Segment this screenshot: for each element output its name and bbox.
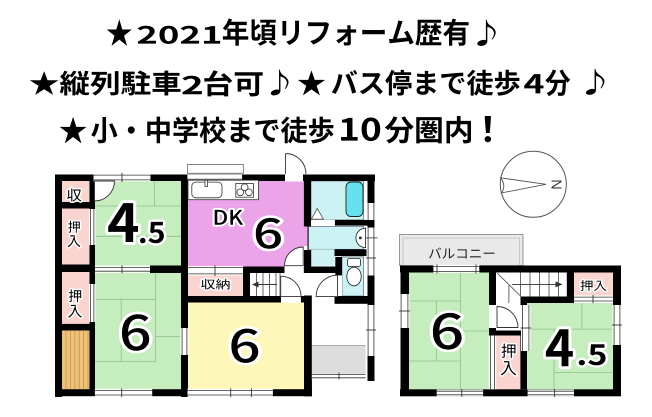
svg-text:N: N	[548, 179, 564, 189]
